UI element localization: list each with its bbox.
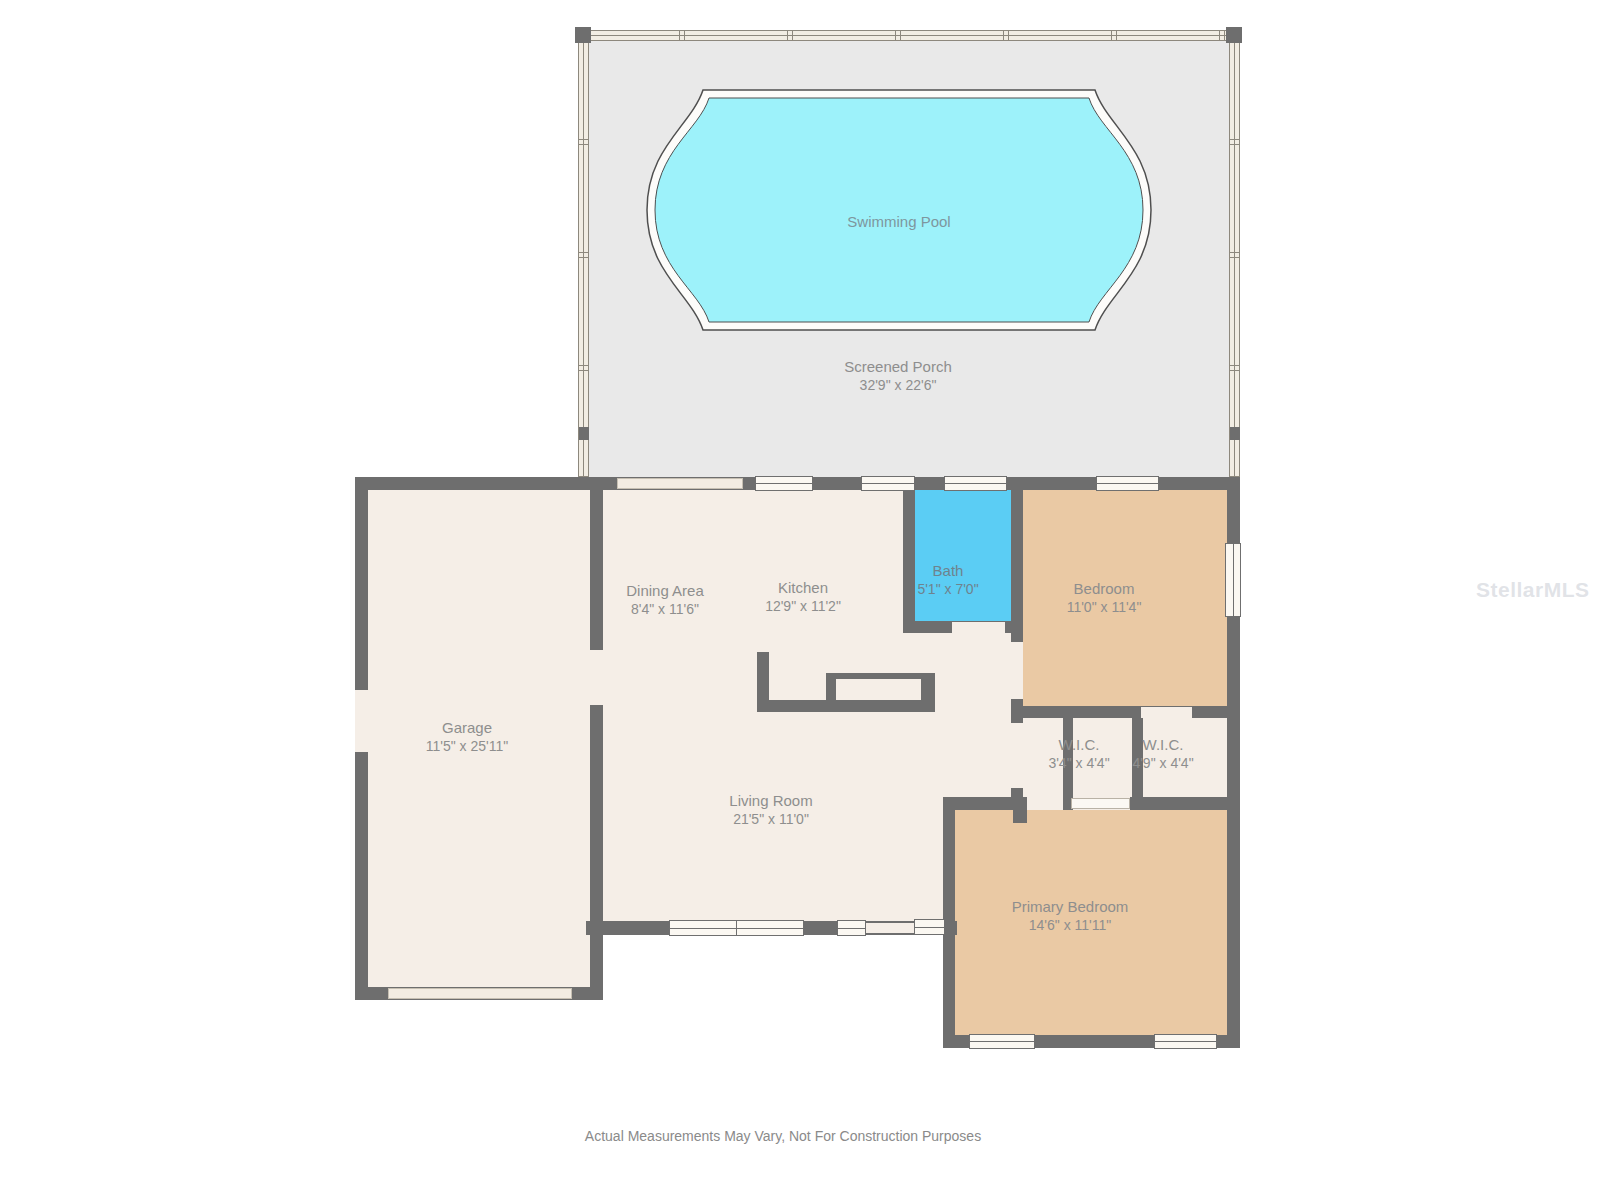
wall bbox=[590, 477, 603, 650]
room-label-dining-area: Dining Area 8'4" x 11'6" bbox=[626, 581, 704, 618]
wall bbox=[1011, 477, 1023, 642]
porch-post bbox=[575, 27, 591, 43]
room-label-wic-2: W.I.C. 4'9" x 4'4" bbox=[1132, 735, 1193, 772]
kitchen-counter bbox=[921, 673, 935, 712]
door-opening bbox=[952, 622, 1005, 633]
kitchen-counter bbox=[826, 673, 836, 712]
disclaimer-text: Actual Measurements May Vary, Not For Co… bbox=[585, 1128, 981, 1144]
door-opening bbox=[1071, 798, 1130, 809]
room-label-primary-bedroom: Primary Bedroom 14'6" x 11'11" bbox=[1012, 897, 1129, 934]
room-label-bath: Bath 5'1" x 7'0" bbox=[917, 561, 978, 598]
room-label-living-room: Living Room 21'5" x 11'0" bbox=[729, 791, 812, 828]
wall bbox=[1011, 699, 1023, 723]
wall bbox=[590, 705, 603, 1000]
room-label-garage: Garage 11'5" x 25'11" bbox=[426, 718, 509, 755]
wall bbox=[355, 752, 368, 1000]
wall bbox=[1130, 797, 1240, 810]
swimming-pool-shape bbox=[643, 86, 1155, 334]
room-label-screened-porch: Screened Porch 32'9" x 22'6" bbox=[844, 357, 952, 394]
room-label-swimming-pool: Swimming Pool bbox=[847, 212, 950, 231]
floor-plan: Swimming Pool Screened Porch 32'9" x 22'… bbox=[0, 0, 1600, 1200]
window bbox=[755, 476, 813, 491]
window bbox=[736, 920, 804, 936]
watermark: StellarMLS bbox=[1476, 578, 1590, 602]
window bbox=[1096, 476, 1159, 491]
wall bbox=[903, 490, 915, 631]
porch-post bbox=[579, 427, 589, 440]
room-label-bedroom: Bedroom 11'0" x 11'4" bbox=[1067, 579, 1142, 616]
wall bbox=[355, 477, 368, 690]
door-opening bbox=[1141, 707, 1192, 718]
window bbox=[861, 476, 915, 491]
wall bbox=[355, 477, 603, 490]
window bbox=[944, 476, 1007, 491]
room-label-wic-1: W.I.C. 3'4" x 4'4" bbox=[1048, 735, 1109, 772]
room-floor-bath bbox=[915, 490, 1011, 621]
window bbox=[1154, 1034, 1217, 1049]
screen-wall bbox=[578, 30, 1240, 41]
window bbox=[669, 920, 737, 936]
room-label-kitchen: Kitchen 12'9" x 11'2" bbox=[765, 578, 841, 615]
wall bbox=[1011, 706, 1240, 718]
porch-post bbox=[1230, 427, 1240, 440]
kitchen-counter bbox=[836, 673, 921, 679]
porch-post bbox=[1226, 27, 1242, 43]
sliding-door bbox=[617, 478, 743, 489]
window bbox=[1225, 543, 1241, 617]
wall bbox=[1011, 788, 1023, 810]
window bbox=[969, 1034, 1035, 1049]
kitchen-counter bbox=[757, 700, 935, 712]
garage-door bbox=[388, 988, 572, 999]
door-opening bbox=[866, 923, 916, 933]
door-opening bbox=[355, 690, 368, 752]
screen-wall bbox=[1229, 30, 1240, 477]
window bbox=[837, 920, 866, 936]
screen-wall bbox=[578, 30, 589, 477]
window bbox=[914, 919, 945, 935]
